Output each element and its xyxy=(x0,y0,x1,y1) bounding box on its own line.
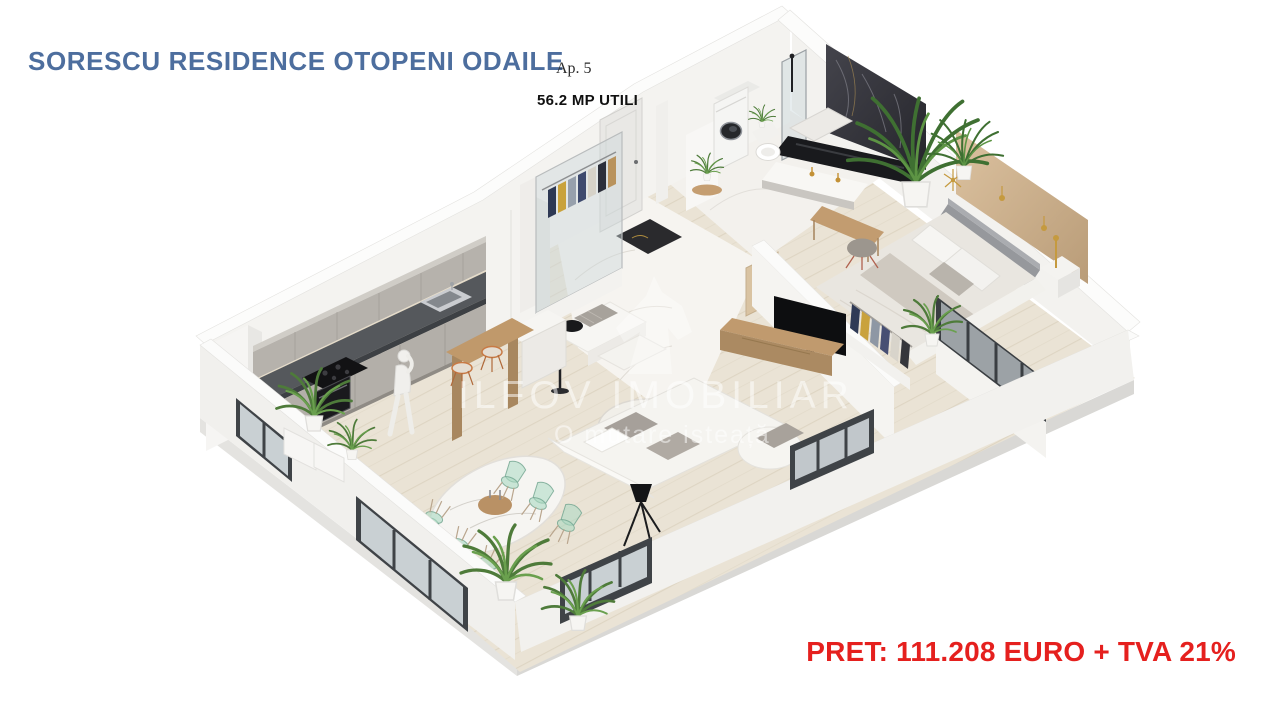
stool xyxy=(847,239,877,258)
usable-area-label: 56.2 MP UTILI xyxy=(537,92,638,109)
watermark-brand: ILFOV IMOBILIAR xyxy=(458,374,854,418)
watermark-slogan: O mutare isteață xyxy=(554,421,771,450)
chess-knight-icon xyxy=(598,270,708,382)
screenshot-root: SORESCU RESIDENCE OTOPENI ODAILE Ap. 5 5… xyxy=(0,0,1270,714)
apartment-number-label: Ap. 5 xyxy=(556,60,592,78)
wall-shelf xyxy=(692,185,722,196)
price-label: PRET: 111.208 EURO + TVA 21% xyxy=(806,636,1236,668)
page-title: SORESCU RESIDENCE OTOPENI ODAILE xyxy=(28,46,564,77)
